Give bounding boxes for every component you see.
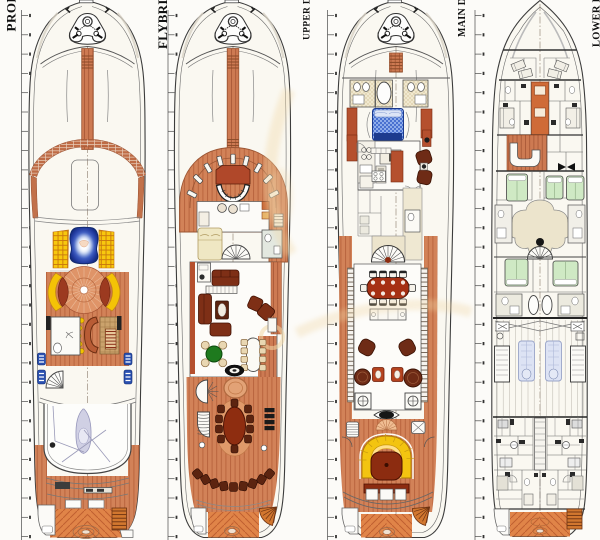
svg-text:UPPER DECK: UPPER DECK bbox=[303, 0, 313, 40]
svg-text:FLYBRIDGE: FLYBRIDGE bbox=[155, 0, 170, 49]
svg-text:PROFILE: PROFILE bbox=[4, 0, 19, 32]
svg-text:MAIN DECK: MAIN DECK bbox=[457, 0, 468, 37]
svg-text:LOWER DECK: LOWER DECK bbox=[592, 0, 600, 47]
